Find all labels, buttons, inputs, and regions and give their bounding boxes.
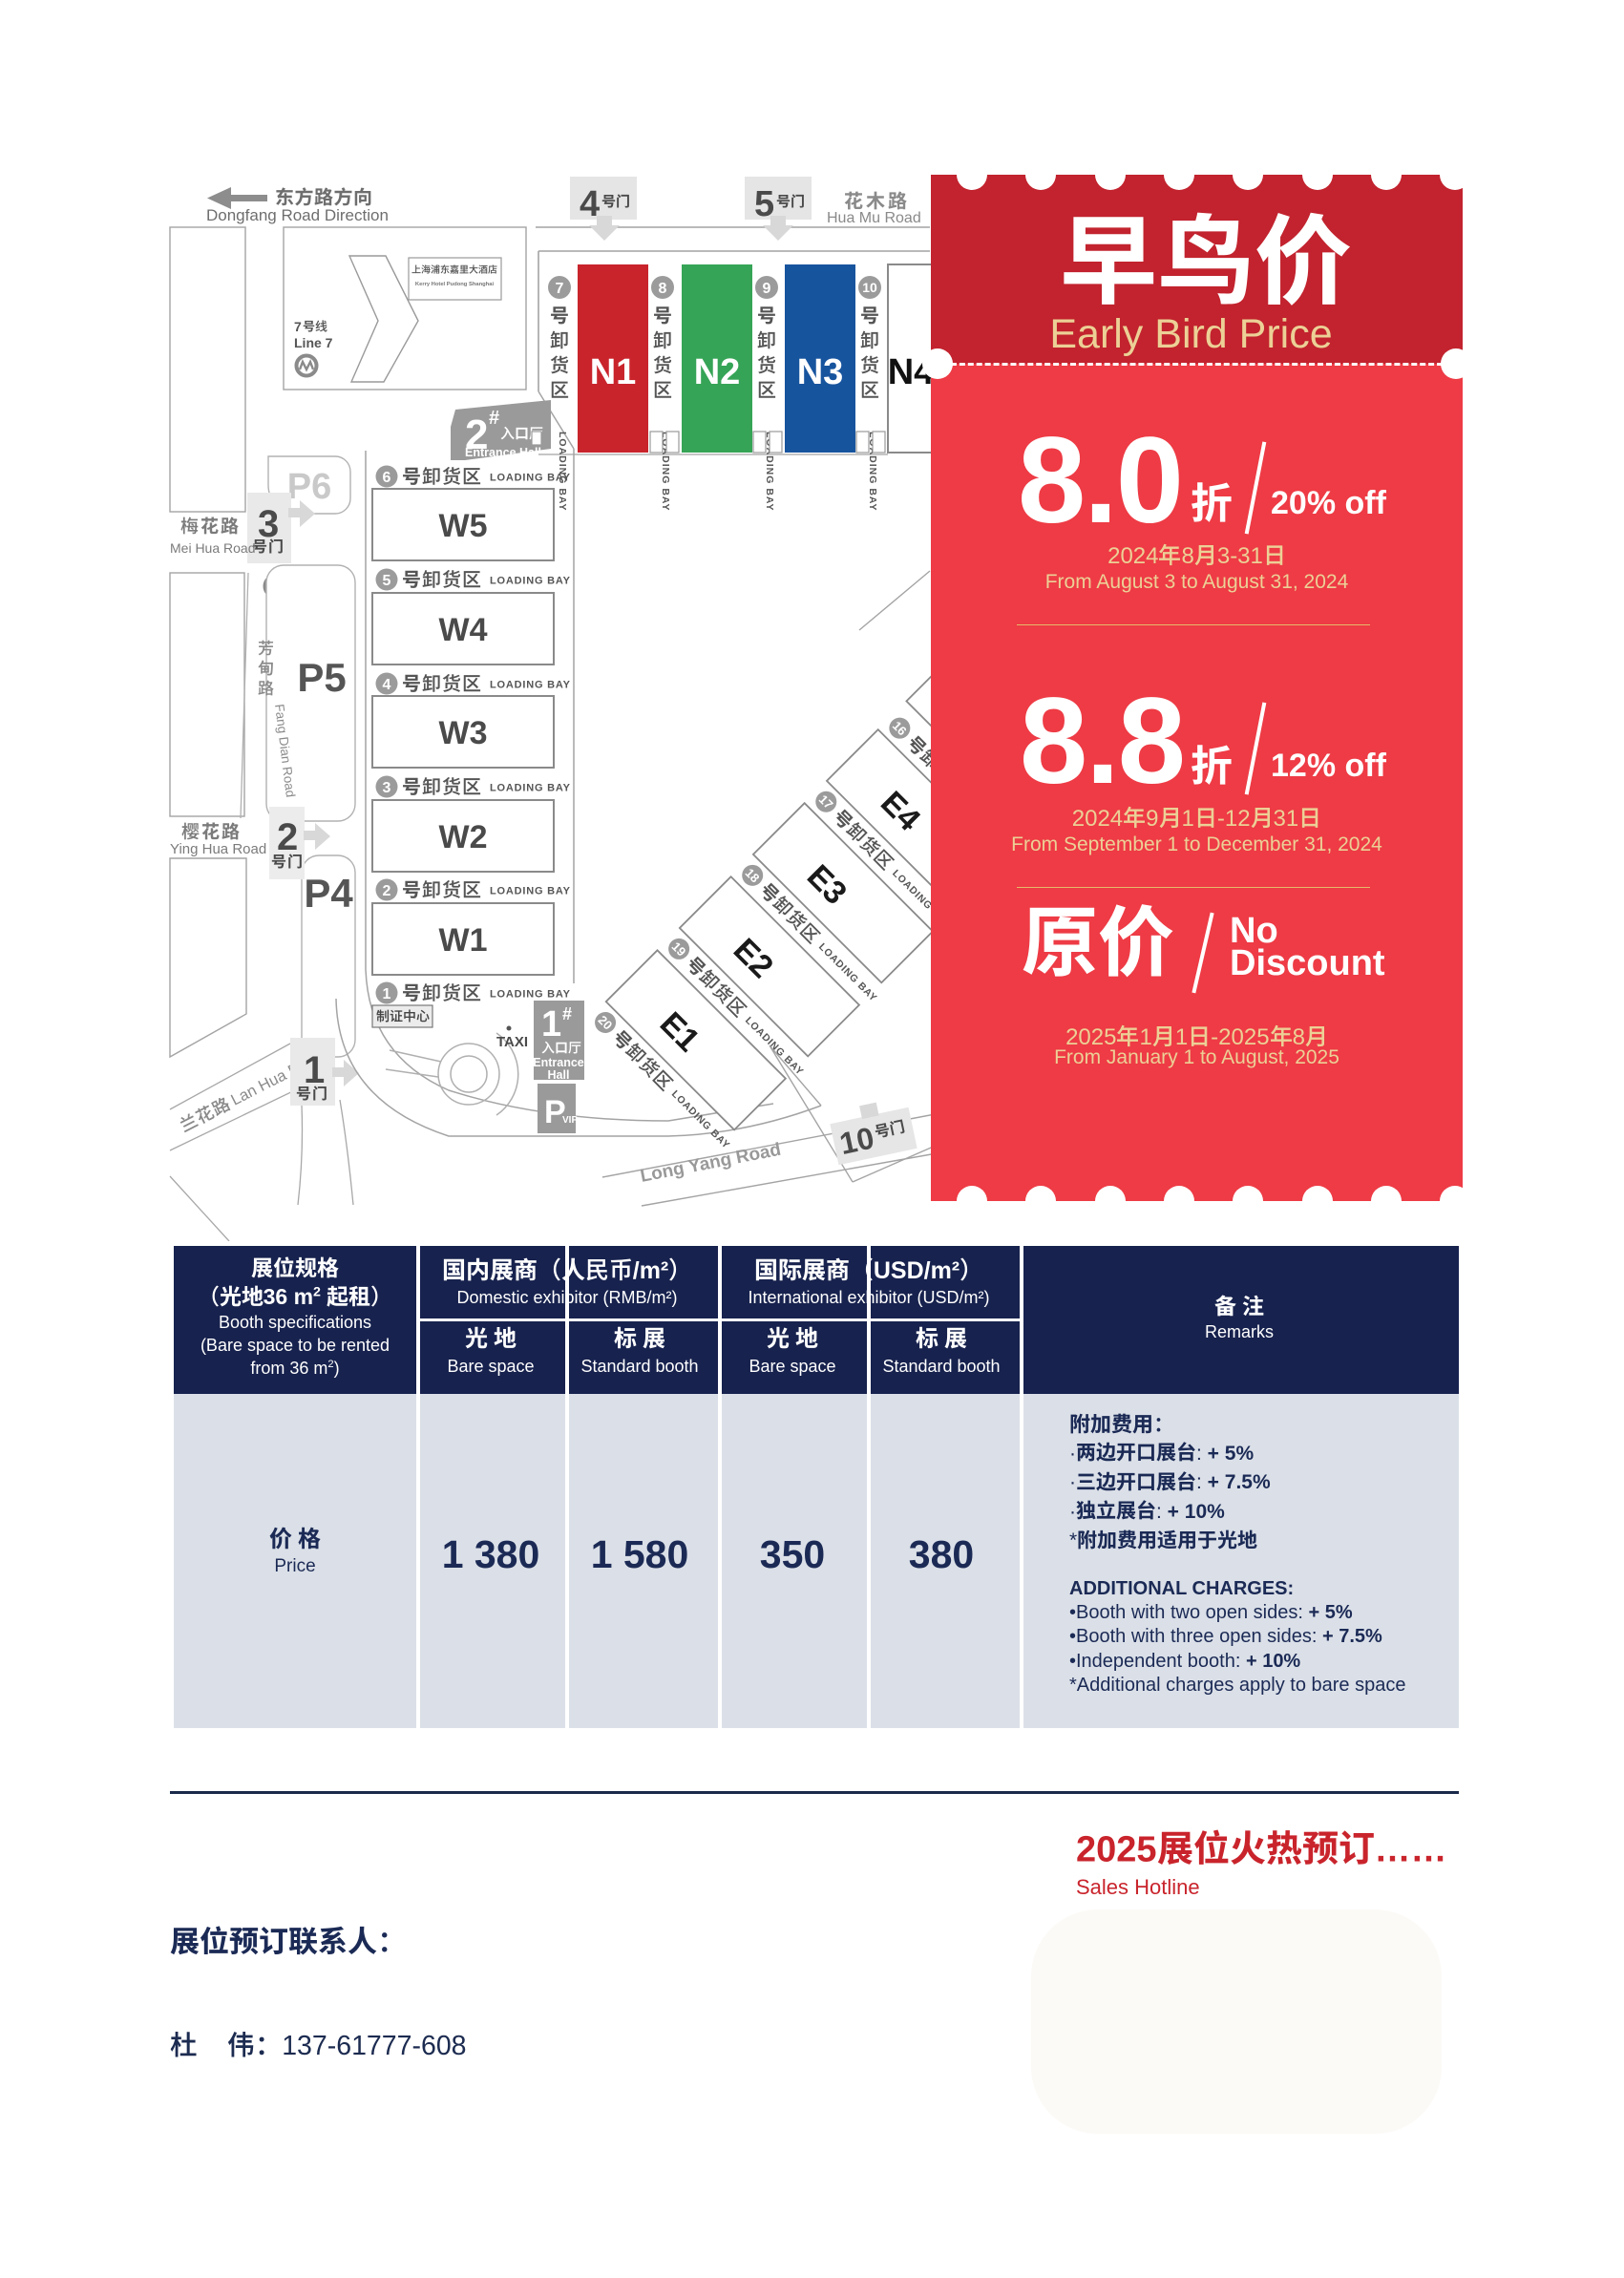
svg-text:8: 8 (659, 281, 667, 297)
svg-text:P5: P5 (297, 655, 346, 700)
svg-text:4: 4 (580, 184, 600, 224)
svg-text:Long Yang Road: Long Yang Road (639, 1140, 783, 1187)
svg-text:P6: P6 (287, 467, 331, 507)
svg-text:Entrance: Entrance (533, 1056, 584, 1069)
svg-text:LOADING BAY: LOADING BAY (490, 886, 571, 897)
svg-text:LOADING BAY: LOADING BAY (490, 783, 571, 794)
svg-text:W1: W1 (439, 922, 488, 959)
svg-text:10: 10 (862, 280, 877, 295)
svg-text:N2: N2 (694, 352, 741, 392)
svg-text:3: 3 (258, 503, 279, 545)
svg-text:P4: P4 (304, 871, 353, 916)
svg-text:Dongfang Road Direction: Dongfang Road Direction (206, 206, 389, 224)
svg-text:Hua Mu Road: Hua Mu Road (827, 210, 921, 226)
svg-text:VIP: VIP (562, 1115, 578, 1126)
svg-text:W5: W5 (439, 508, 488, 544)
svg-text:TAXI: TAXI (496, 1034, 528, 1050)
svg-text:7: 7 (294, 319, 302, 334)
svg-text:#: # (562, 1004, 572, 1023)
svg-text:7: 7 (556, 281, 564, 297)
svg-text:4: 4 (383, 677, 391, 693)
svg-text:Kerry Hotel Pudong Shanghai: Kerry Hotel Pudong Shanghai (415, 282, 495, 287)
svg-text:#: # (489, 408, 499, 429)
svg-text:3: 3 (383, 780, 391, 796)
svg-text:LOADING BAY: LOADING BAY (490, 680, 571, 691)
svg-text:Hall: Hall (548, 1068, 570, 1082)
svg-text:LOADING BAY: LOADING BAY (490, 989, 571, 1001)
svg-text:6: 6 (383, 470, 391, 486)
svg-text:W3: W3 (439, 715, 488, 751)
svg-text:N3: N3 (797, 352, 844, 392)
svg-text:10: 10 (836, 1120, 876, 1161)
svg-text:1: 1 (383, 986, 391, 1002)
svg-text:9: 9 (763, 281, 771, 297)
svg-text:LOADING BAY: LOADING BAY (557, 432, 568, 512)
svg-text:Mei Hua Road: Mei Hua Road (170, 540, 256, 556)
svg-text:1: 1 (541, 1004, 561, 1044)
svg-text:5: 5 (383, 573, 391, 589)
svg-text:2: 2 (383, 883, 391, 899)
svg-text:Line 7: Line 7 (294, 335, 333, 350)
svg-text:W4: W4 (439, 612, 488, 648)
svg-text:Entrance Hall: Entrance Hall (465, 446, 541, 459)
svg-text:2: 2 (277, 816, 298, 858)
svg-text:LOADING BAY: LOADING BAY (490, 576, 571, 587)
svg-text:Ying Hua Road: Ying Hua Road (170, 841, 266, 857)
svg-text:N1: N1 (590, 352, 637, 392)
svg-text:1: 1 (304, 1049, 325, 1091)
svg-text:W2: W2 (439, 819, 488, 855)
